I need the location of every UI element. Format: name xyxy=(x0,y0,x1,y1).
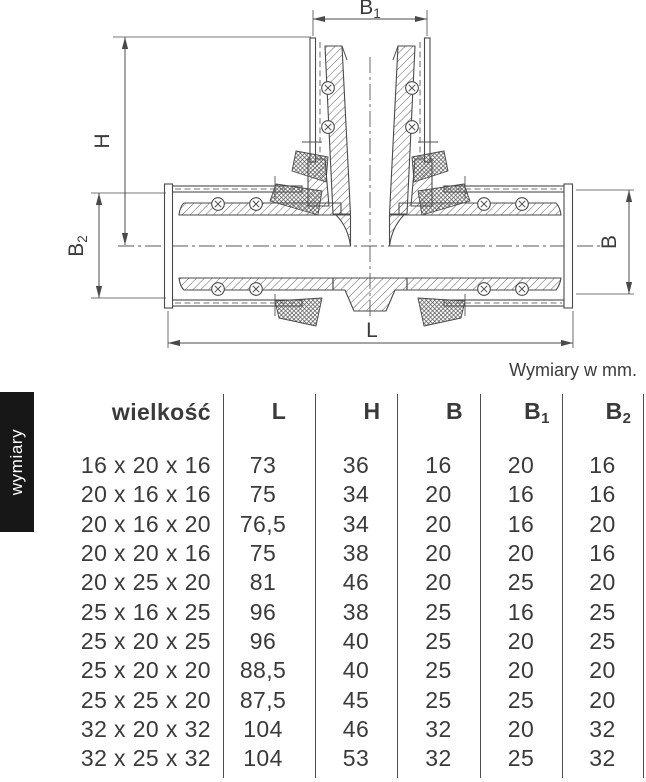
dimension-label-h: H xyxy=(91,133,114,148)
table-row: 25 x 20 x 259640252025 xyxy=(40,626,643,656)
cell-size: 32 x 20 x 32 xyxy=(40,716,211,743)
cell-b2: 16 xyxy=(562,540,643,567)
cell-b1: 20 xyxy=(480,657,562,684)
dimension-label-b1: B1 xyxy=(359,0,381,21)
cell-l: 81 xyxy=(211,569,315,596)
cell-h: 38 xyxy=(315,540,397,567)
cell-l: 75 xyxy=(211,540,315,567)
cell-b: 25 xyxy=(397,599,480,626)
cell-l: 104 xyxy=(211,716,315,743)
table-row: 32 x 20 x 3210446322032 xyxy=(40,714,643,744)
cell-b: 32 xyxy=(397,745,480,772)
cell-b1: 16 xyxy=(480,481,562,508)
units-caption: Wymiary w mm. xyxy=(509,360,637,380)
cell-l: 76,5 xyxy=(211,511,315,538)
cell-l: 75 xyxy=(211,481,315,508)
table-row: 16 x 20 x 167336162016 xyxy=(40,450,643,480)
cell-b1: 16 xyxy=(480,511,562,538)
cell-b1: 25 xyxy=(480,569,562,596)
cell-h: 38 xyxy=(315,599,397,626)
column-header-b2: B2 xyxy=(562,398,643,427)
cell-b2: 20 xyxy=(562,657,643,684)
cell-b: 16 xyxy=(397,452,480,479)
dimension-label-b2: B2 xyxy=(65,235,90,257)
cell-b2: 16 xyxy=(562,452,643,479)
cell-b: 25 xyxy=(397,657,480,684)
cell-size: 25 x 16 x 25 xyxy=(40,599,211,626)
cell-b2: 32 xyxy=(562,716,643,743)
cell-b1: 25 xyxy=(480,745,562,772)
table-row: 25 x 25 x 2087,545252520 xyxy=(40,685,643,715)
cell-b2: 25 xyxy=(562,599,643,626)
table-row: 25 x 16 x 259638251625 xyxy=(40,597,643,627)
cell-b1: 20 xyxy=(480,716,562,743)
column-header-l: L xyxy=(211,398,315,427)
fitting-diagram: B1 H B2 B L Wymiary w mm. xyxy=(0,0,646,392)
table-header-row: wielkość L H B B1 B2 xyxy=(40,392,643,432)
sidebar-wymiary: wymiary xyxy=(0,392,34,532)
cell-size: 25 x 25 x 20 xyxy=(40,687,211,714)
cell-b1: 20 xyxy=(480,628,562,655)
sleeve-dashed-lines xyxy=(175,42,562,303)
cell-size: 32 x 25 x 32 xyxy=(40,745,211,772)
table-row: 20 x 20 x 167538202016 xyxy=(40,538,643,568)
cell-b: 20 xyxy=(397,481,480,508)
cell-h: 45 xyxy=(315,687,397,714)
column-header-b: B xyxy=(397,398,480,427)
cell-size: 25 x 20 x 20 xyxy=(40,657,211,684)
cell-l: 87,5 xyxy=(211,687,315,714)
cell-b1: 20 xyxy=(480,540,562,567)
column-header-size: wielkość xyxy=(40,399,211,426)
table-row: 20 x 16 x 2076,534201620 xyxy=(40,509,643,539)
cell-b2: 20 xyxy=(562,511,643,538)
cell-h: 36 xyxy=(315,452,397,479)
cell-h: 46 xyxy=(315,569,397,596)
cell-b: 25 xyxy=(397,628,480,655)
cell-b1: 20 xyxy=(480,452,562,479)
cell-b: 20 xyxy=(397,569,480,596)
cell-l: 88,5 xyxy=(211,657,315,684)
cell-h: 53 xyxy=(315,745,397,772)
cell-b2: 32 xyxy=(562,745,643,772)
cell-size: 25 x 20 x 25 xyxy=(40,628,211,655)
cell-b2: 20 xyxy=(562,569,643,596)
table-divider xyxy=(643,394,644,778)
table-row: 20 x 16 x 167534201616 xyxy=(40,480,643,510)
cell-b: 32 xyxy=(397,716,480,743)
cell-b: 25 xyxy=(397,687,480,714)
cell-b: 20 xyxy=(397,540,480,567)
cell-l: 73 xyxy=(211,452,315,479)
cell-b1: 25 xyxy=(480,687,562,714)
sleeves xyxy=(165,38,573,308)
cell-l: 96 xyxy=(211,628,315,655)
cell-h: 34 xyxy=(315,481,397,508)
dimension-label-b: B xyxy=(598,235,621,249)
dimension-label-l: L xyxy=(366,319,378,342)
cell-size: 20 x 20 x 16 xyxy=(40,540,211,567)
cell-b2: 20 xyxy=(562,687,643,714)
cell-l: 104 xyxy=(211,745,315,772)
cell-size: 16 x 20 x 16 xyxy=(40,452,211,479)
column-header-h: H xyxy=(315,398,397,427)
table-row: 32 x 25 x 3210453322532 xyxy=(40,744,643,774)
cell-size: 20 x 25 x 20 xyxy=(40,569,211,596)
cell-b2: 25 xyxy=(562,628,643,655)
cell-h: 40 xyxy=(315,657,397,684)
cell-l: 96 xyxy=(211,599,315,626)
sidebar-label: wymiary xyxy=(7,429,27,496)
cell-h: 46 xyxy=(315,716,397,743)
table-row: 25 x 20 x 2088,540252020 xyxy=(40,656,643,686)
table-row: 20 x 25 x 208146202520 xyxy=(40,568,643,598)
cell-size: 20 x 16 x 20 xyxy=(40,511,211,538)
cell-b2: 16 xyxy=(562,481,643,508)
cell-b: 20 xyxy=(397,511,480,538)
cell-h: 34 xyxy=(315,511,397,538)
cell-size: 20 x 16 x 16 xyxy=(40,481,211,508)
cell-h: 40 xyxy=(315,628,397,655)
cell-b1: 16 xyxy=(480,599,562,626)
column-header-b1: B1 xyxy=(480,398,562,427)
